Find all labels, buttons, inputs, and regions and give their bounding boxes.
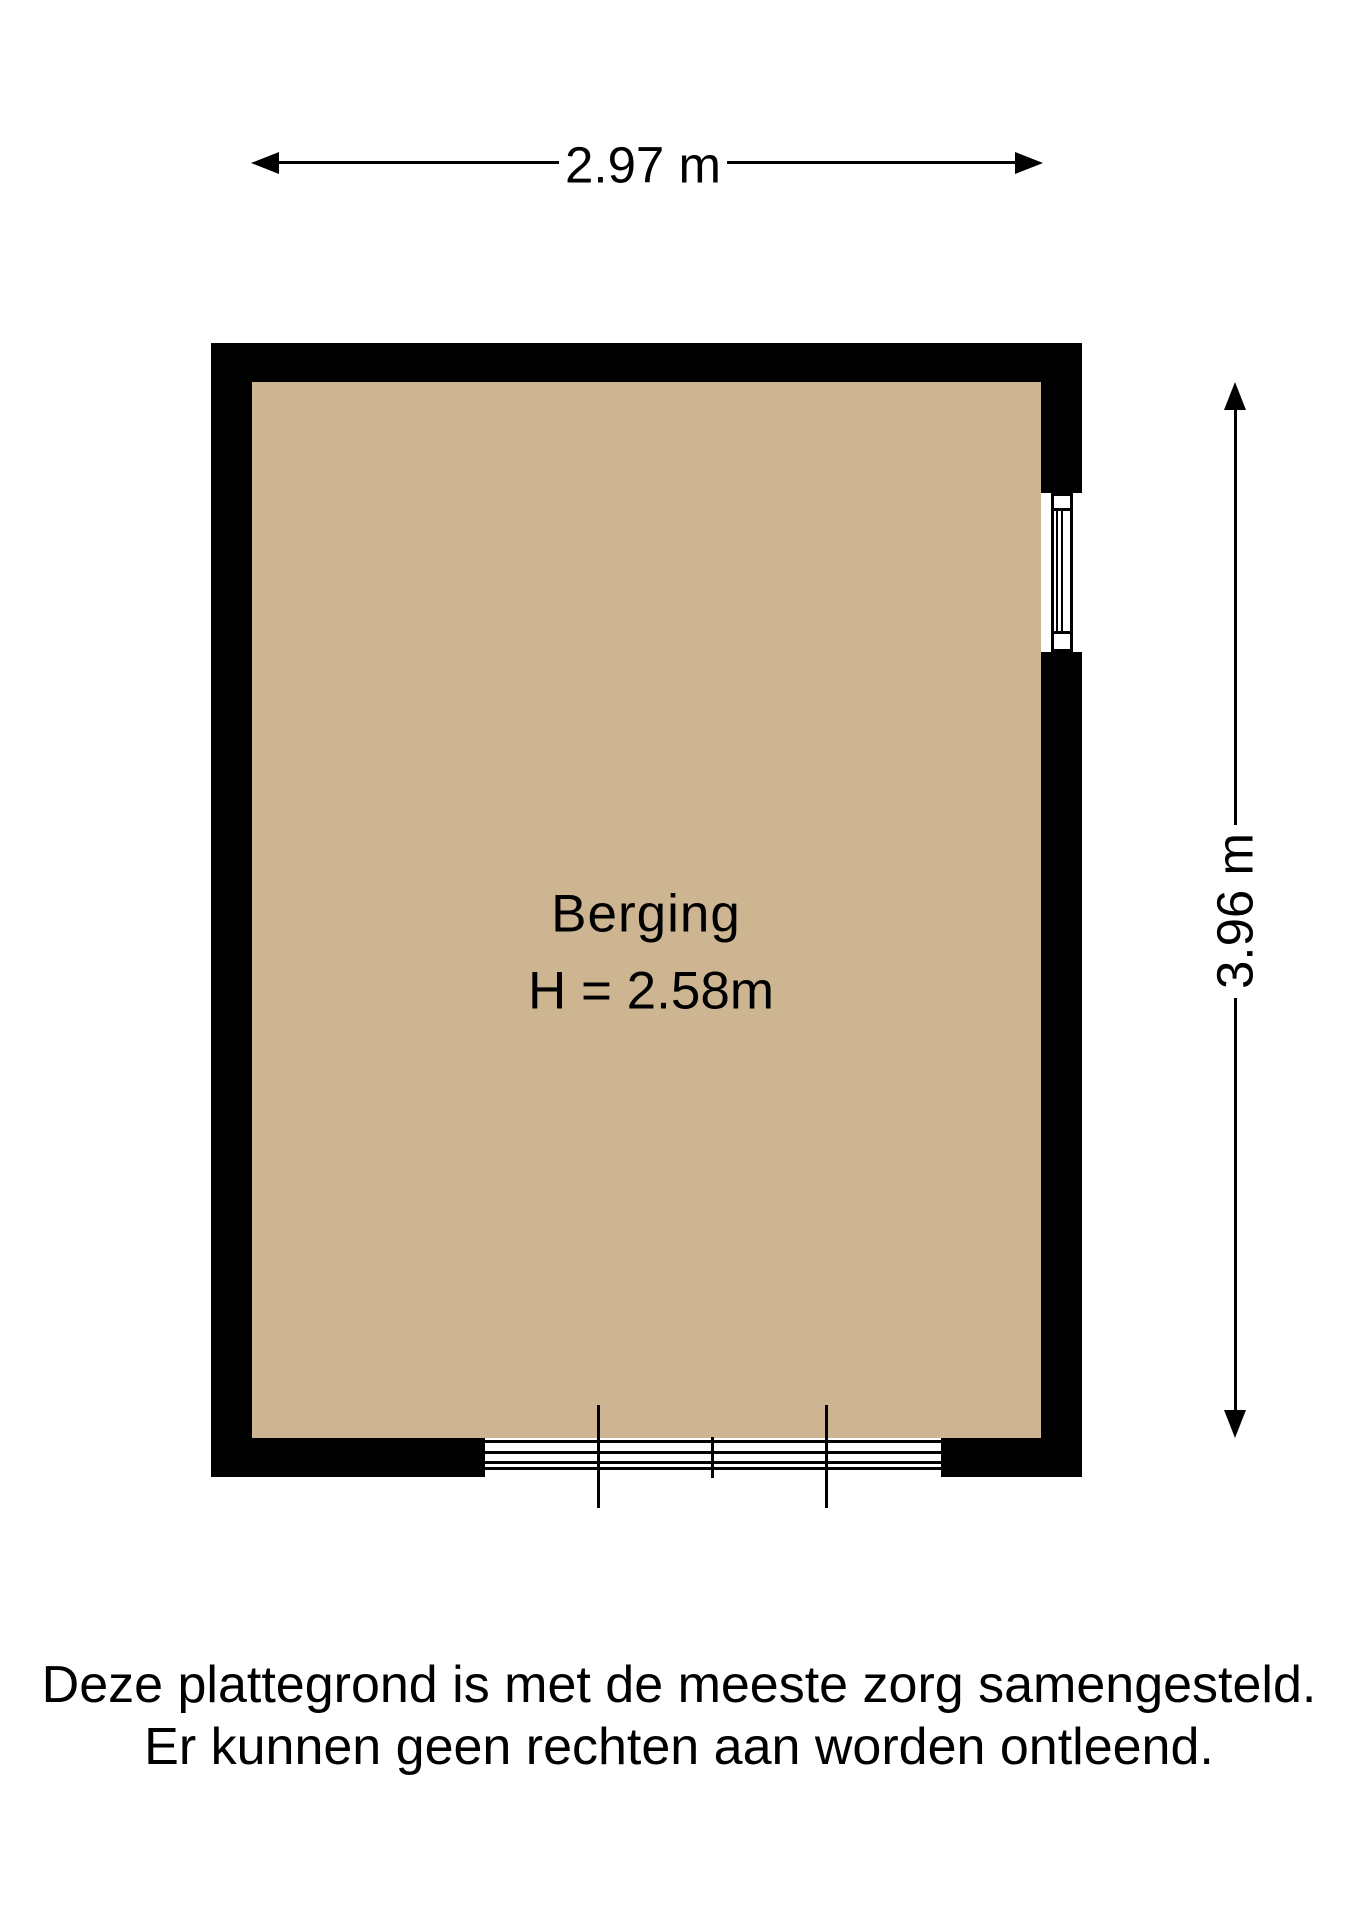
room-name-label: Berging: [551, 884, 741, 945]
height-dimension-line-bottom: [1234, 998, 1237, 1412]
door-panel-tick: [825, 1405, 828, 1508]
disclaimer-line2: Er kunnen geen rechten aan worden ontlee…: [0, 1716, 1358, 1778]
window-glass-line: [1056, 511, 1058, 631]
disclaimer: Deze plattegrond is met de meeste zorg s…: [0, 1654, 1358, 1778]
width-dimension-label: 2.97 m: [565, 140, 721, 191]
arrow-up-icon: [1224, 382, 1246, 410]
door-panel-tick: [597, 1405, 600, 1508]
arrow-right-icon: [1015, 152, 1043, 174]
window-frame-divider-bottom: [1051, 631, 1073, 634]
height-dimension-label: 3.96 m: [1210, 833, 1261, 989]
height-dimension-line-top: [1234, 408, 1237, 825]
width-dimension-line-left: [277, 161, 559, 164]
width-dimension-line-right: [727, 161, 1017, 164]
window-glass-line: [1061, 511, 1063, 631]
door-panel-divider: [711, 1437, 714, 1478]
room-ceiling-height-label: H = 2.58m: [528, 961, 774, 1022]
arrow-down-icon: [1224, 1410, 1246, 1438]
floorplan-page: 2.97 m Berging H = 2.58m 3.96 m: [0, 0, 1358, 1920]
disclaimer-line1: Deze plattegrond is met de meeste zorg s…: [0, 1654, 1358, 1716]
arrow-left-icon: [251, 152, 279, 174]
